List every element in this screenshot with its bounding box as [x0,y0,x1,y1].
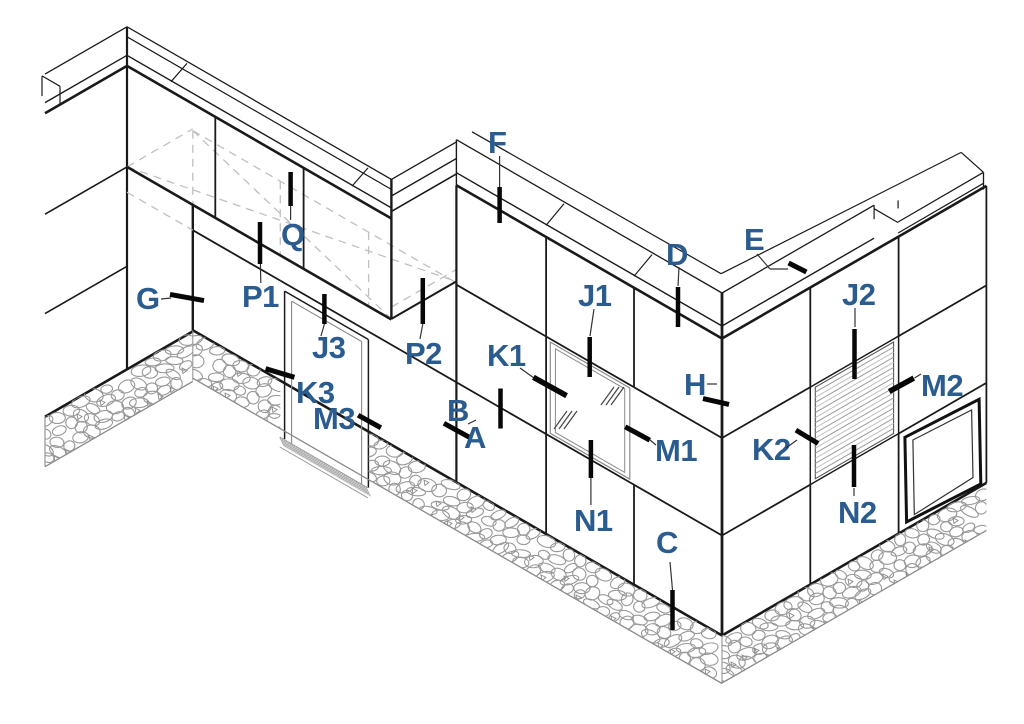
svg-text:J1: J1 [578,278,612,313]
svg-text:N1: N1 [574,503,613,538]
svg-text:J2: J2 [842,277,875,312]
svg-text:K2: K2 [752,432,791,467]
svg-text:N2: N2 [838,495,877,530]
svg-text:P2: P2 [405,336,442,371]
svg-text:J3: J3 [312,330,346,365]
svg-text:Q: Q [281,217,305,252]
svg-text:H: H [684,367,706,402]
svg-text:E: E [744,222,764,257]
svg-text:M2: M2 [921,368,963,403]
svg-text:M3: M3 [313,401,355,436]
svg-text:F: F [488,125,506,160]
svg-text:G: G [136,281,160,316]
svg-text:P1: P1 [242,279,279,314]
svg-text:C: C [656,525,678,560]
svg-text:D: D [666,237,688,272]
svg-text:A: A [464,420,486,455]
svg-text:K1: K1 [487,338,526,373]
svg-text:M1: M1 [655,433,697,468]
